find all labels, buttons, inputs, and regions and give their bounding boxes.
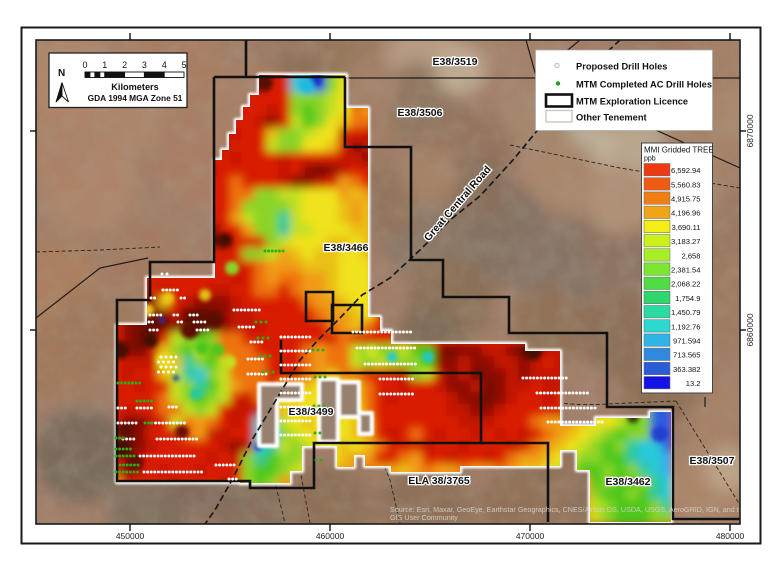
svg-text:4: 4	[162, 60, 167, 70]
svg-text:0: 0	[82, 60, 87, 70]
svg-text:ELA 38/3765: ELA 38/3765	[408, 475, 470, 487]
svg-text:13.2: 13.2	[686, 379, 701, 388]
svg-text:470000: 470000	[516, 531, 545, 541]
svg-text:450000: 450000	[116, 531, 145, 541]
svg-text:MMI Gridded TREE: MMI Gridded TREE	[644, 146, 714, 155]
svg-text:E38/3507: E38/3507	[690, 455, 735, 467]
svg-text:E38/3466: E38/3466	[324, 242, 369, 254]
svg-text:1: 1	[102, 60, 107, 70]
svg-text:2,068.22: 2,068.22	[671, 280, 701, 289]
svg-text:2,658: 2,658	[681, 251, 700, 260]
svg-text:2,381.54: 2,381.54	[671, 266, 701, 275]
svg-text:3,690.11: 3,690.11	[672, 223, 701, 232]
svg-text:N: N	[58, 68, 65, 79]
svg-text:713.565: 713.565	[673, 351, 700, 360]
svg-text:5: 5	[181, 60, 186, 70]
svg-text:E38/3499: E38/3499	[289, 406, 334, 418]
svg-text:480000: 480000	[716, 531, 745, 541]
svg-text:4,915.75: 4,915.75	[671, 195, 701, 204]
svg-text:1,192.76: 1,192.76	[671, 322, 701, 331]
svg-text:ppb: ppb	[644, 156, 656, 163]
svg-text:MTM Completed AC Drill Holes: MTM Completed AC Drill Holes	[576, 80, 712, 90]
svg-text:6,592.94: 6,592.94	[671, 166, 701, 175]
svg-text:E38/3506: E38/3506	[398, 107, 443, 119]
svg-text:Other Tenement: Other Tenement	[576, 113, 647, 123]
svg-text:363.382: 363.382	[673, 365, 700, 374]
svg-text:460000: 460000	[316, 531, 345, 541]
svg-text:GDA 1994 MGA Zone 51: GDA 1994 MGA Zone 51	[88, 93, 183, 103]
svg-text:Kilometers: Kilometers	[111, 82, 159, 92]
svg-text:2: 2	[122, 60, 127, 70]
svg-text:Proposed Drill Holes: Proposed Drill Holes	[576, 62, 667, 72]
svg-text:3: 3	[142, 60, 147, 70]
svg-text:6870000: 6870000	[745, 114, 755, 147]
svg-text:MTM Exploration Licence: MTM Exploration Licence	[576, 97, 688, 107]
svg-text:1,450.79: 1,450.79	[671, 308, 701, 317]
svg-text:3,183.27: 3,183.27	[671, 237, 701, 246]
svg-text:6860000: 6860000	[745, 313, 755, 346]
svg-text:E38/3462: E38/3462	[606, 476, 651, 488]
svg-text:4,196.96: 4,196.96	[671, 209, 701, 218]
svg-text:E38/3519: E38/3519	[433, 56, 478, 68]
svg-text:1,754.9: 1,754.9	[675, 294, 700, 303]
svg-text:5,560.83: 5,560.83	[671, 180, 701, 189]
svg-text:971.594: 971.594	[673, 337, 700, 346]
svg-text:GIS User Community: GIS User Community	[390, 513, 458, 522]
